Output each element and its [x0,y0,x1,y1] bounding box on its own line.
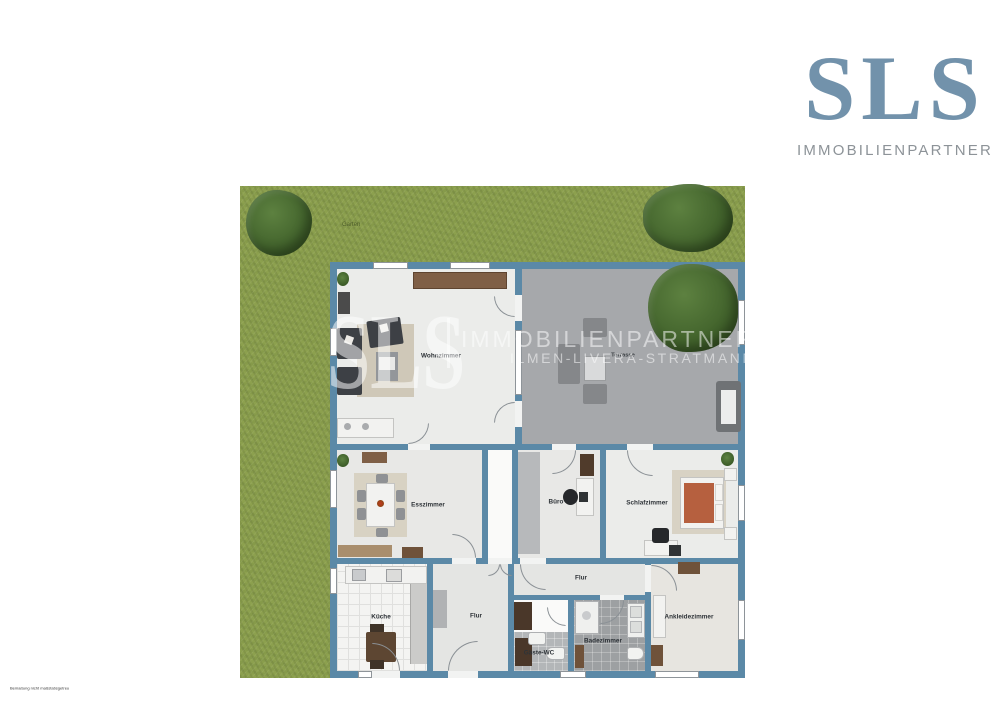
label-kueche: Küche [371,614,391,621]
room-hall-strip [488,450,512,558]
nightstand [724,468,737,481]
window [738,600,745,640]
kitchen-counter [410,584,427,664]
window [738,300,745,345]
label-ankleidezimmer: Ankleidezimmer [665,614,714,621]
door-opening [515,295,522,321]
wc-sink [528,632,546,645]
chair [376,474,388,483]
cabinet [580,454,594,476]
brand-logo: SLS IMMOBILIENPARTNER [795,42,995,159]
chair [396,490,405,502]
decor [344,423,351,430]
sofa [337,367,362,395]
stool [651,645,663,666]
floorplan-page: SLS IMMOBILIENPARTNER Garten [0,0,1000,707]
chair [357,508,366,520]
stove [386,569,402,582]
brand-name: SLS [795,42,995,134]
cabinet [402,547,423,558]
label-terrasse: Terrasse [611,352,635,358]
chair [396,508,405,520]
basin [630,606,642,618]
window [450,262,490,269]
label-badezimmer: Badezimmer [584,638,622,645]
media-shelf [338,292,350,314]
label-buero: Büro [549,499,564,506]
dresser [678,562,700,574]
sideboard [413,272,507,289]
sofa [366,317,403,348]
window [655,671,699,678]
window [330,470,337,508]
laptop [579,492,588,502]
door-opening [515,401,522,427]
label-wohnzimmer: Wohnzimmer [421,353,461,360]
door-opening [372,671,400,678]
terrace-bush [648,264,738,352]
sun-lounger-pad [721,390,736,424]
nightstand [724,527,737,540]
bath-bench [575,645,584,668]
window [560,671,586,678]
fruit-bowl [377,500,384,507]
watermark-divider [447,318,450,368]
door-opening [452,558,476,564]
window [358,671,372,678]
outdoor-sofa [558,344,580,384]
door-opening [448,671,478,678]
window [330,568,337,594]
laptop [669,545,681,556]
bed-blanket [684,483,714,523]
label-flur-sued: Flur [470,613,482,620]
chair [357,490,366,502]
outdoor-bench [583,318,607,337]
plant-icon [337,272,349,286]
office-chair [652,528,669,543]
plant-icon [721,452,734,466]
chair [376,528,388,537]
label-flur: Flur [575,575,587,582]
outdoor-table [584,356,606,381]
tree-right [643,184,733,252]
shower-drain [582,611,591,620]
wardrobe [514,602,532,630]
window [738,485,745,521]
brand-subtitle: IMMOBILIENPARTNER [795,142,995,159]
garden-label: Garten [342,221,360,228]
window [515,330,522,395]
built-in-closet [518,452,540,554]
basin [630,621,642,633]
pillow [715,484,723,501]
window [373,262,408,269]
window [330,328,337,356]
disclaimer-text: Bemaßung nicht maßstabsgetreu [10,686,69,691]
label-esszimmer: Esszimmer [411,502,445,509]
plant-icon [337,454,349,467]
door-opening [408,444,430,450]
sideboard [338,545,392,557]
label-schlafzimmer: Schlafzimmer [626,500,667,507]
pillow [715,504,723,521]
cabinet [362,452,387,463]
label-gaeste-wc: Gäste-WC [524,650,554,657]
coffee-table-top [379,357,395,370]
toilet [627,647,644,660]
hall-cabinet [433,590,447,628]
kitchen-sink [352,569,366,581]
office-chair [563,489,578,505]
outdoor-bench [583,384,607,404]
decor [362,423,369,430]
